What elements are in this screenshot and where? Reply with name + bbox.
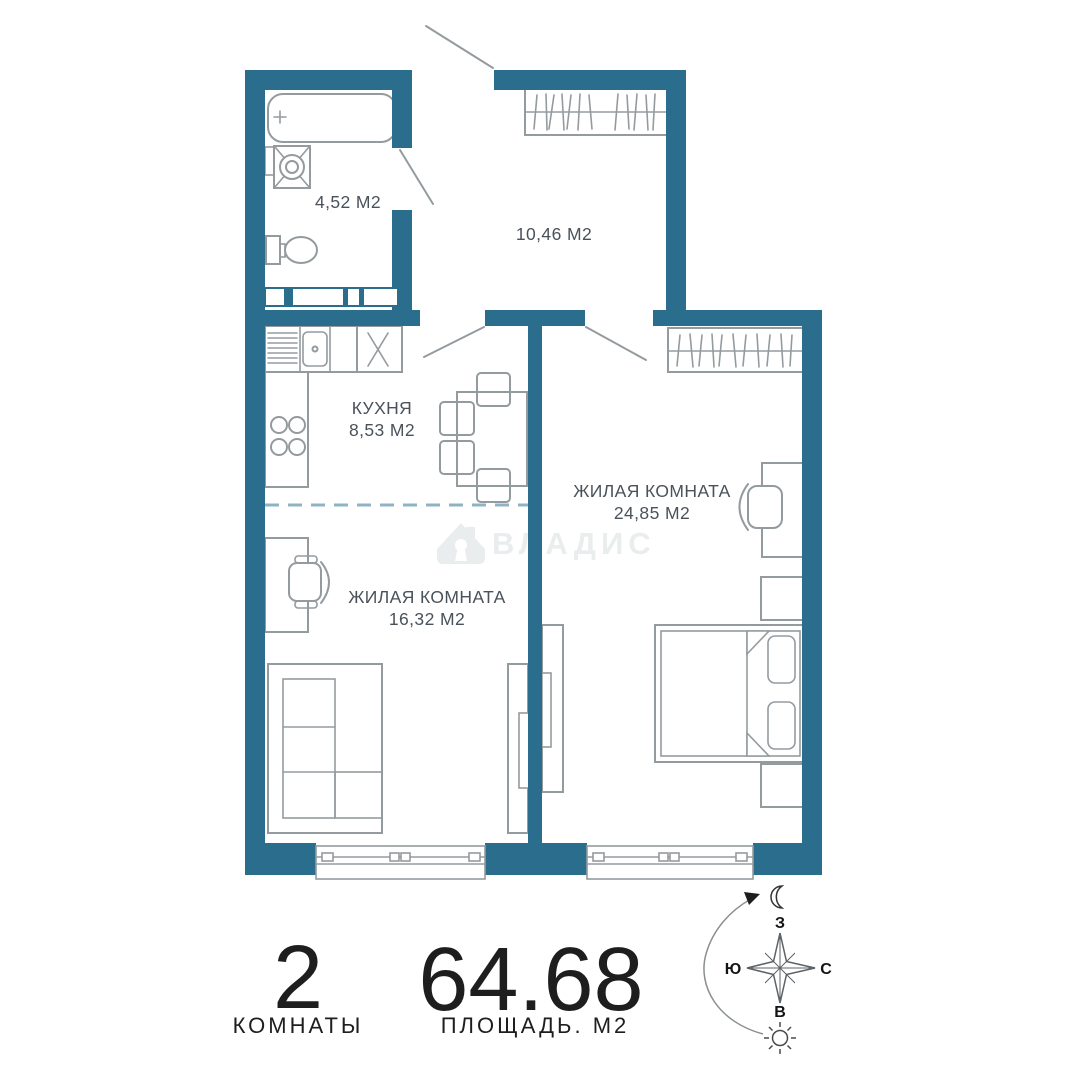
- desk-chair-bedroom-seat: [748, 486, 782, 528]
- tv-small-room: [519, 713, 529, 788]
- kitchen-name-label: КУХНЯ: [352, 398, 412, 418]
- wall-bottom-left: [245, 843, 316, 875]
- living-large-name-label: ЖИЛАЯ КОМНАТА: [573, 481, 731, 501]
- summary-stats: 2 КОМНАТЫ 64.68 ПЛОЩАДЬ. М2: [233, 928, 644, 1038]
- wall-room-divider: [528, 326, 542, 843]
- total-area-label: ПЛОЩАДЬ. М2: [441, 1013, 630, 1038]
- tv-bedroom: [542, 673, 551, 747]
- compass-east-label: В: [774, 1004, 786, 1021]
- window-1-handle-left: [322, 853, 333, 861]
- window-living-small: [316, 846, 485, 879]
- wall-hallway-right: [666, 90, 686, 310]
- wall-bedroom-top: [653, 310, 822, 326]
- window-2-handle-mid-1: [659, 853, 668, 861]
- window-2-handle-mid-2: [670, 853, 679, 861]
- compass-north-label: С: [820, 961, 832, 978]
- window-1-frame: [316, 846, 485, 879]
- dish-rack-hatch: [268, 333, 297, 363]
- window-2-handle-right: [736, 853, 747, 861]
- bathroom-area-label: 4,52 М2: [315, 192, 381, 212]
- watermark: ВЛАДИС: [437, 523, 656, 564]
- living-small-name-label: ЖИЛАЯ КОМНАТА: [348, 587, 506, 607]
- duct-slot-1: [266, 289, 284, 305]
- rooms-count-label: КОМНАТЫ: [233, 1013, 364, 1038]
- bed: [655, 625, 806, 762]
- bed-pillow-2: [768, 702, 795, 749]
- wall-bottom-center: [485, 843, 587, 875]
- living-small-area-label: 16,32 М2: [389, 609, 465, 629]
- compass-west-label: З: [775, 915, 785, 932]
- window-1-handle-mid-2: [401, 853, 410, 861]
- duct-slot-2: [293, 289, 343, 305]
- wall-bathroom-top: [245, 70, 412, 90]
- hallway-area-label: 10,46 М2: [516, 224, 592, 244]
- desk-chair-small-seat: [289, 563, 321, 601]
- living-large-area-label: 24,85 М2: [614, 503, 690, 523]
- washer-drum-outer: [280, 155, 304, 179]
- wall-bathroom-right-upper: [392, 90, 412, 148]
- wall-left-outer: [245, 70, 265, 875]
- window-2-handle-left: [593, 853, 604, 861]
- window-bedroom: [587, 846, 753, 879]
- wall-right-outer: [802, 310, 822, 875]
- wall-bottom-right: [753, 843, 822, 875]
- bed-pillow-1: [768, 636, 795, 683]
- kitchen-area-label: 8,53 М2: [349, 420, 415, 440]
- wall-kitchen-top: [245, 310, 420, 326]
- wall-hall-bottom-tbar: [485, 310, 585, 326]
- duct-slot-3: [348, 289, 359, 305]
- watermark-text: ВЛАДИС: [492, 526, 656, 561]
- floorplan-canvas: ВЛАДИС: [0, 0, 1080, 1080]
- wall-hallway-top: [494, 70, 686, 90]
- floorplan-page: ВЛАДИС: [0, 0, 1080, 1080]
- compass-south-label: Ю: [725, 961, 742, 978]
- window-1-handle-right: [469, 853, 480, 861]
- window-2-frame: [587, 846, 753, 879]
- duct-slot-4: [364, 289, 397, 305]
- window-1-handle-mid-1: [390, 853, 399, 861]
